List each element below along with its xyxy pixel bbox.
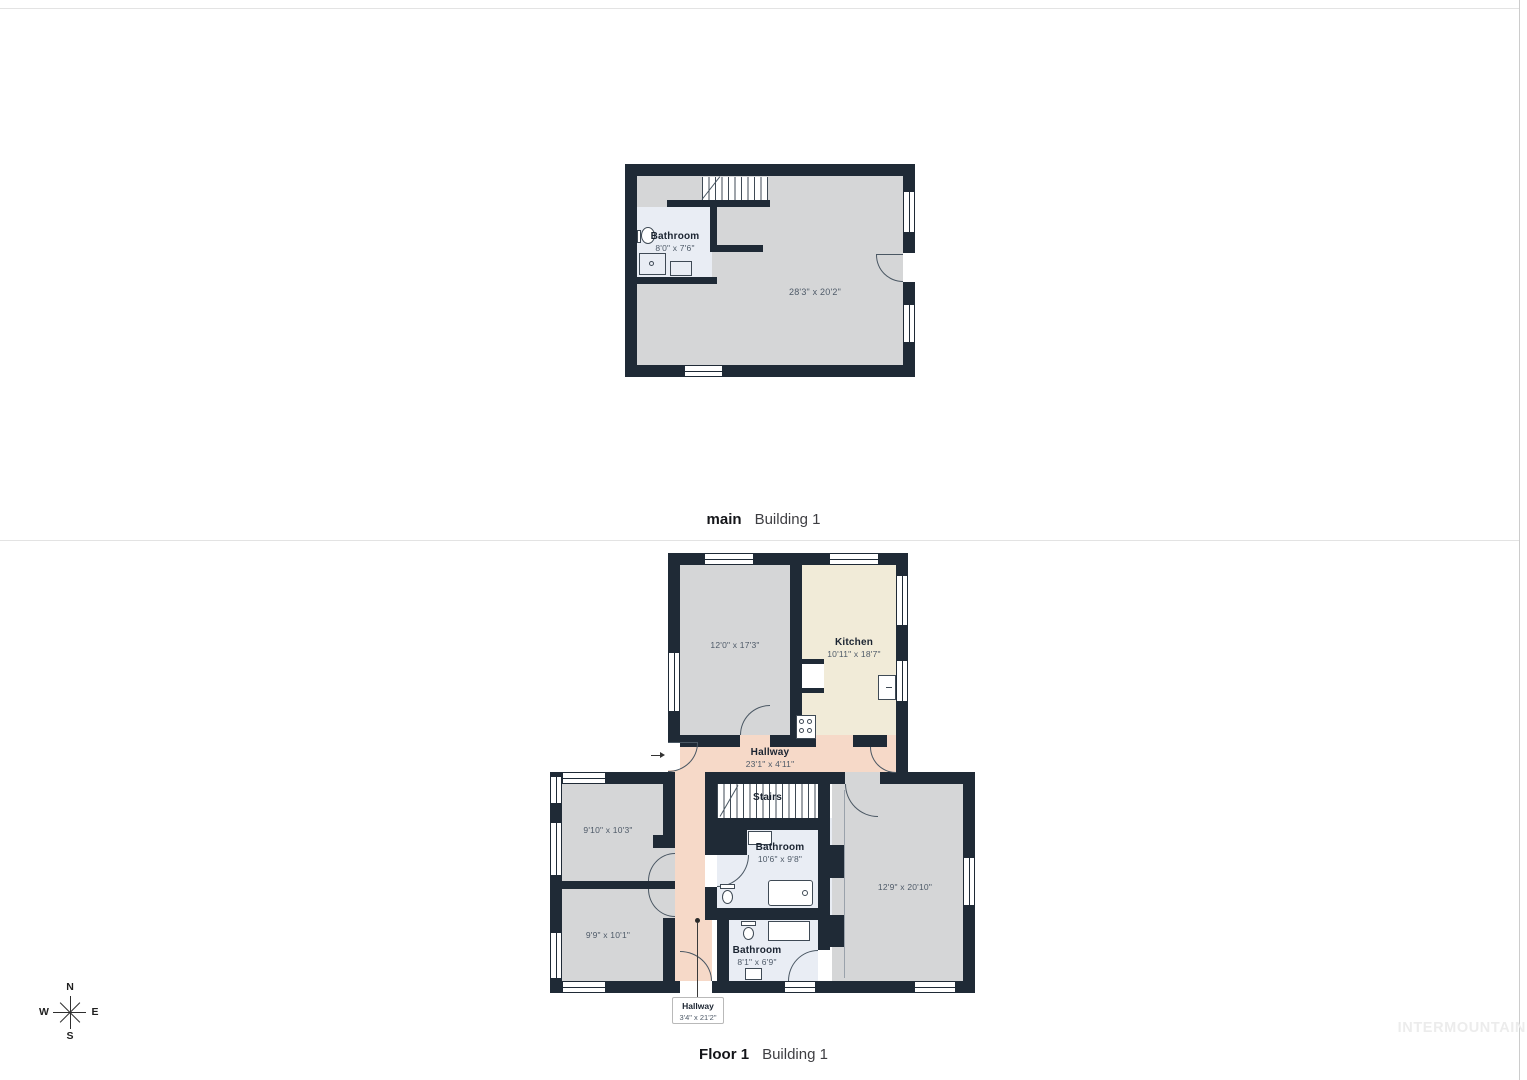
wall (790, 565, 802, 735)
wall (663, 918, 675, 981)
hallway-callout: Hallway 3'4" x 21'2" (672, 997, 724, 1024)
wall (663, 784, 675, 838)
page: Bathroom 8'0" x 7'6" 28'3" x 20'2" mainB… (0, 0, 1527, 1080)
room-label: Bathroom (730, 843, 830, 853)
room-dims: 23'1" x 4'11" (720, 760, 820, 769)
room-dims: 10'11" x 18'7" (804, 650, 904, 659)
window (896, 661, 908, 701)
wall (635, 277, 717, 284)
door-opening-fill (845, 772, 880, 784)
window (668, 653, 680, 711)
wall (705, 772, 717, 920)
leader-line (697, 923, 698, 997)
room-fill (680, 565, 790, 735)
window (963, 858, 975, 905)
page-right-edge (1519, 0, 1520, 1080)
building-name: Building 1 (755, 511, 821, 528)
window (830, 553, 878, 565)
door-opening (680, 981, 712, 993)
floor-name: main (707, 511, 742, 528)
window (563, 981, 605, 993)
window (915, 981, 955, 993)
window (903, 192, 915, 232)
floorplan-floor1: 12'0" x 17'3" Kitchen 10'11" x 18'7" Hal… (550, 553, 975, 993)
bathtub-faucet-icon (802, 890, 808, 896)
stove-burner-icon (799, 728, 804, 733)
toilet-icon (722, 890, 733, 904)
room-dims: 3'4" x 21'2" (673, 1014, 723, 1022)
compass-south: S (62, 1031, 78, 1042)
room-dims: 9'10" x 10'3" (558, 826, 658, 835)
room-dims: 28'3" x 20'2" (755, 288, 875, 297)
sink-icon (745, 968, 762, 980)
window (903, 305, 915, 342)
window (550, 933, 562, 978)
wall (550, 981, 975, 993)
window (785, 981, 815, 993)
floor-label-floor1: Floor 1Building 1 (0, 1046, 1527, 1063)
wall (705, 772, 845, 784)
floor-label-main: mainBuilding 1 (0, 511, 1527, 528)
wall (705, 908, 830, 920)
section-divider-middle (0, 540, 1520, 541)
closet-fill (802, 664, 824, 688)
wall (562, 881, 675, 889)
door-opening (705, 855, 717, 887)
window (550, 777, 562, 803)
room-label: Kitchen (804, 638, 904, 648)
compass-rose: N S W E (30, 978, 110, 1046)
floor-name: Floor 1 (699, 1046, 749, 1063)
room-label: Hallway (720, 748, 820, 758)
wall (710, 245, 763, 252)
room-dims: 12'0" x 17'3" (685, 641, 785, 650)
wall (668, 553, 680, 742)
wall (830, 915, 844, 947)
stove-burner-icon (799, 719, 804, 724)
wall (770, 735, 790, 747)
room-label: Bathroom (707, 946, 807, 956)
window (896, 576, 908, 625)
section-divider-top (0, 8, 1520, 9)
door-opening (818, 950, 830, 981)
shower-drain-icon (649, 261, 654, 266)
floorplan-main: Bathroom 8'0" x 7'6" 28'3" x 20'2" (625, 164, 915, 377)
compass-north: N (62, 982, 78, 993)
sink-icon (670, 261, 692, 276)
room-label: Stairs (740, 793, 795, 803)
building-name: Building 1 (762, 1046, 828, 1063)
room-dims: 12'9" x 20'10" (855, 883, 955, 892)
wall (717, 818, 820, 830)
stairs-treads (702, 177, 768, 200)
room-dims: 8'0" x 7'6" (635, 244, 715, 253)
stove-burner-icon (807, 719, 812, 724)
room-label: Hallway (673, 1002, 723, 1011)
wall (653, 835, 675, 848)
room-dims: 10'6" x 9'8" (730, 855, 830, 864)
wall (625, 365, 915, 377)
partition-line (844, 790, 845, 978)
wall (802, 659, 824, 664)
toilet-icon (720, 884, 735, 889)
wall (625, 164, 915, 176)
wall (880, 772, 975, 784)
window (563, 772, 605, 784)
compass-west: W (36, 1007, 52, 1018)
window (705, 553, 753, 565)
bathtub-icon (768, 921, 810, 941)
window (685, 365, 722, 377)
wall (830, 845, 844, 878)
stove-burner-icon (807, 728, 812, 733)
entry-arrow-icon (651, 752, 665, 760)
room-label: Bathroom (635, 232, 715, 242)
wall (625, 164, 637, 377)
door-opening (903, 253, 915, 282)
wall (818, 784, 830, 950)
watermark: INTERMOUNTAIN (1398, 1020, 1526, 1036)
room-dims: 8'1" x 6'9" (707, 958, 807, 967)
wall (853, 735, 887, 747)
toilet-icon (743, 927, 754, 940)
compass-east: E (87, 1007, 103, 1018)
room-dims: 9'9" x 10'1" (558, 931, 658, 940)
wall (802, 688, 824, 693)
wall (667, 200, 770, 207)
fridge-icon (878, 675, 896, 700)
toilet-icon (741, 921, 756, 926)
